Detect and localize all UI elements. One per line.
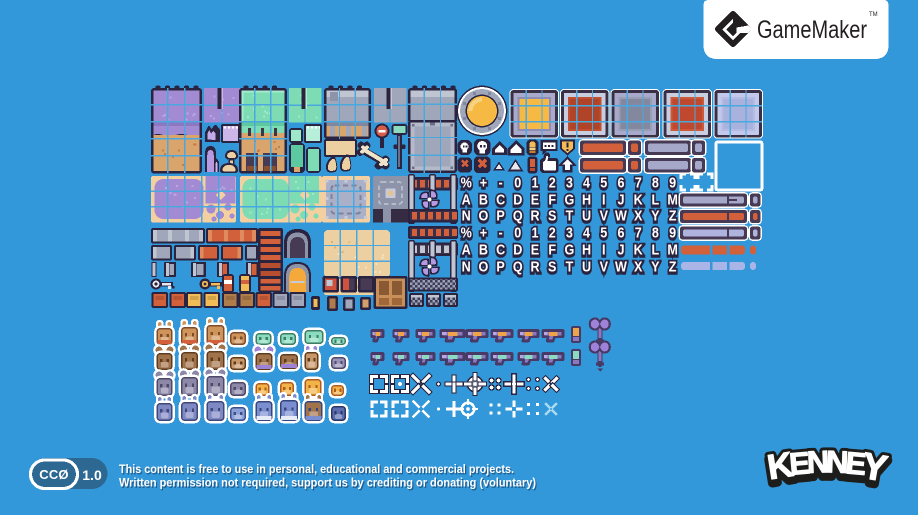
svg-text:Written permission not require: Written permission not required, support… <box>119 476 536 490</box>
svg-text:1.0: 1.0 <box>82 467 102 483</box>
svg-text:TM: TM <box>869 12 878 18</box>
svg-text:This content is free to use in: This content is free to use in personal,… <box>119 462 514 476</box>
svg-text:CCØ: CCØ <box>39 467 69 482</box>
svg-text:GameMaker: GameMaker <box>757 16 867 44</box>
